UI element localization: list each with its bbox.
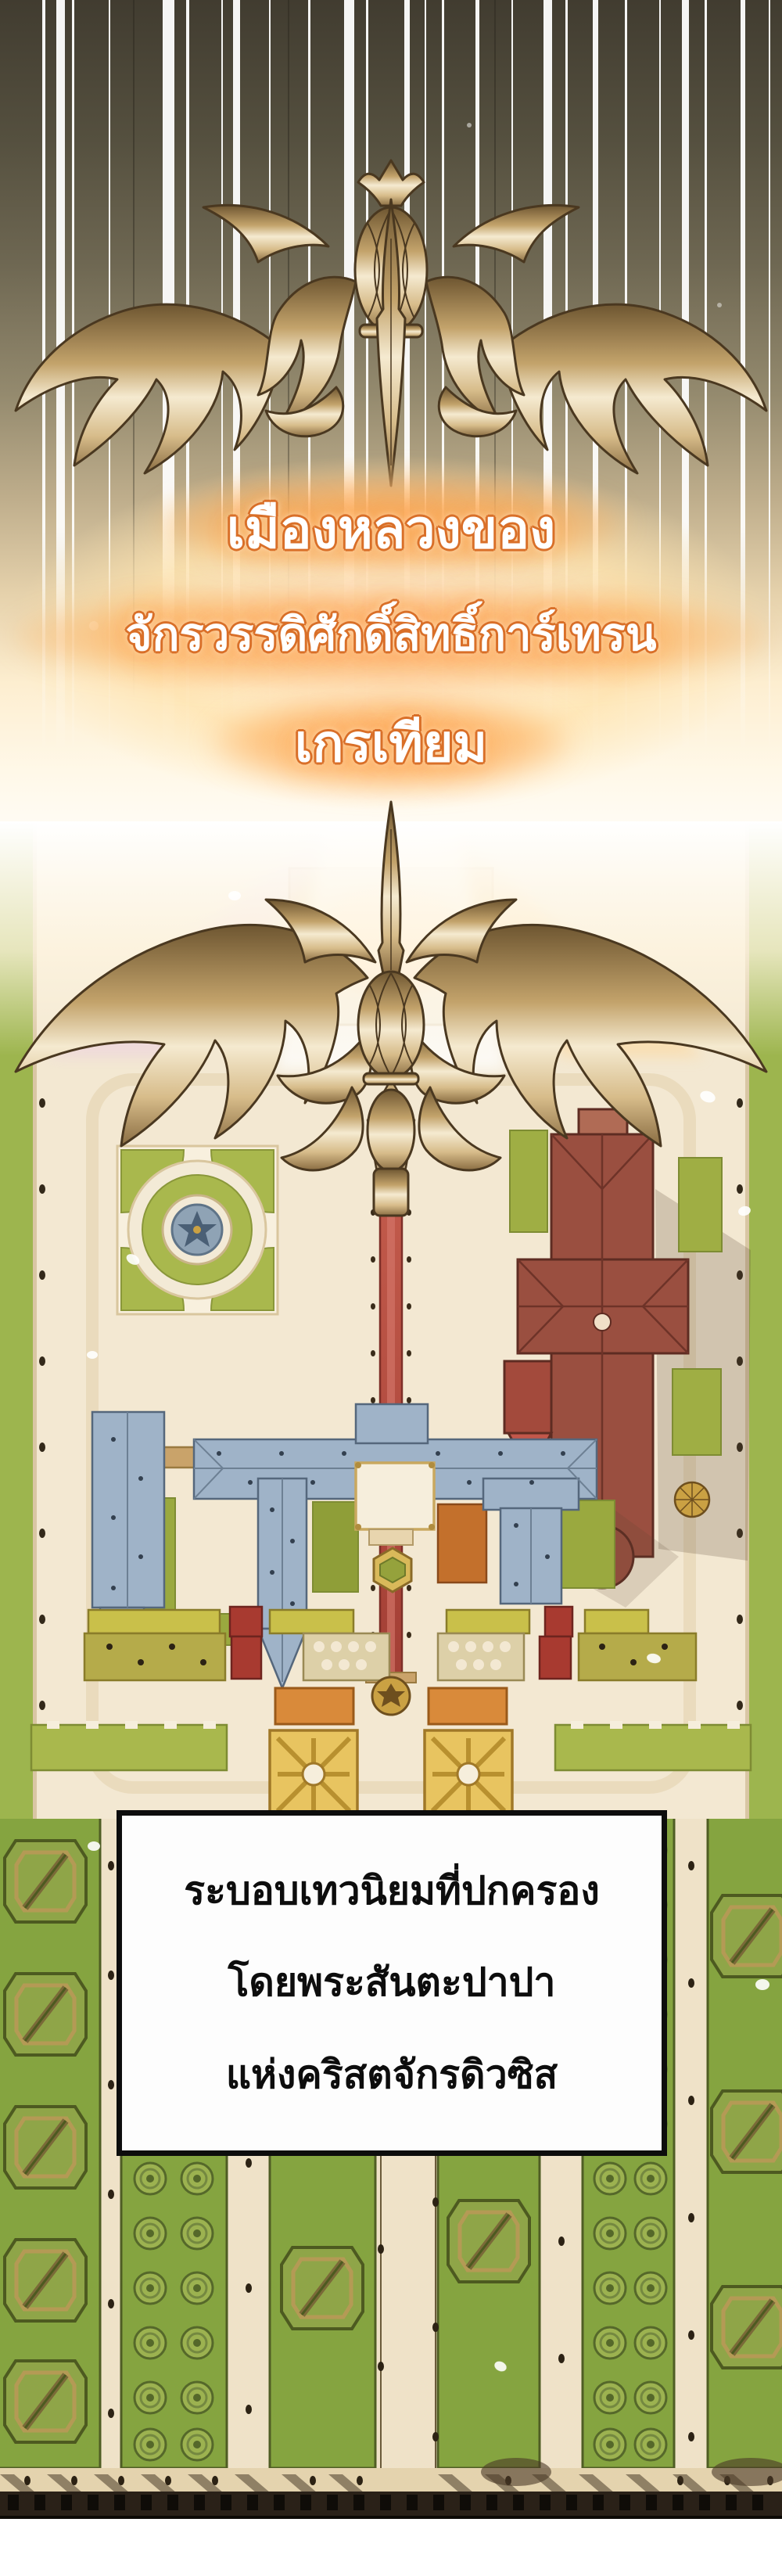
title-line-1: เมืองหลวงของ [0, 487, 782, 571]
caption-box: ระบอบเทวนิยมที่ปกครอง โดยพระสันตะปาปา แห… [117, 1810, 667, 2156]
gold-spear-ornament [0, 782, 782, 1220]
acanthus-spray-right [407, 900, 766, 1170]
title-line-2: จักรวรรดิศักดิ์สิทธิ์การ์เทรน [0, 598, 782, 670]
caption-line-3: แห่งคริสตจักรดิวซิส [226, 2053, 558, 2098]
spear-finial [358, 802, 424, 1216]
bottom-white-margin [0, 2519, 782, 2576]
caption-line-2: โดยพระสันตะปาปา [228, 1960, 556, 2006]
acanthus-spray-left [16, 900, 375, 1170]
title-line-3: เกรเทียม [0, 702, 782, 785]
inner-courtyard [356, 1463, 434, 1529]
caption-line-1: ระบอบเทวนิยมที่ปกครอง [184, 1869, 600, 1914]
orange-courtyard [438, 1504, 486, 1583]
webtoon-panel: เมืองหลวงของ จักรวรรดิศักดิ์สิทธิ์การ์เท… [0, 0, 782, 2576]
